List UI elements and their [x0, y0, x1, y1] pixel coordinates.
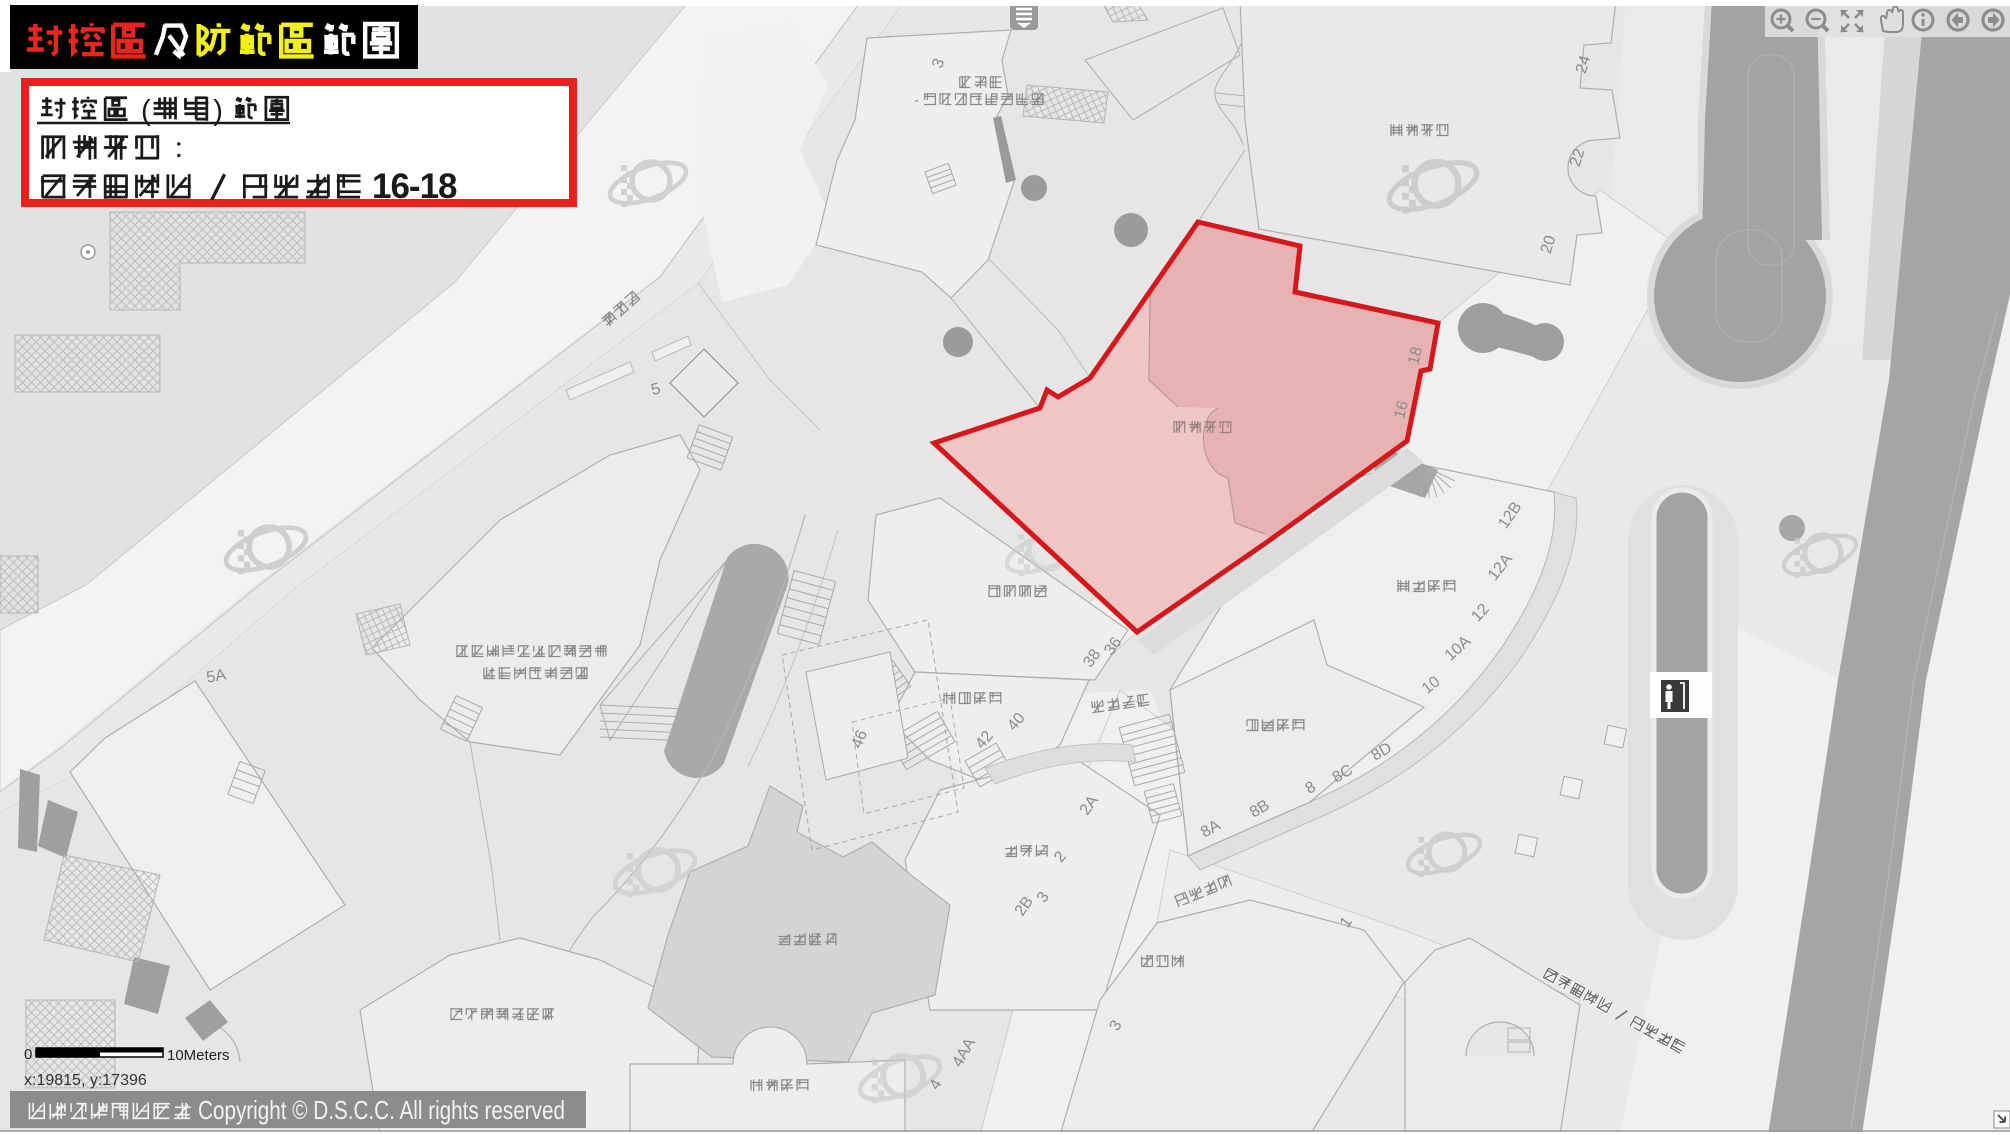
svg-text:Copyright © D.S.C.C. All right: Copyright © D.S.C.C. All rights reserved — [198, 1095, 565, 1125]
svg-text:10Meters: 10Meters — [167, 1047, 230, 1064]
svg-text:-: - — [914, 93, 923, 109]
svg-text:x:19815, y:17396: x:19815, y:17396 — [24, 1072, 147, 1089]
svg-text:5A: 5A — [205, 666, 228, 686]
svg-text:16-18: 16-18 — [372, 167, 457, 206]
svg-text:0: 0 — [24, 1046, 32, 1063]
